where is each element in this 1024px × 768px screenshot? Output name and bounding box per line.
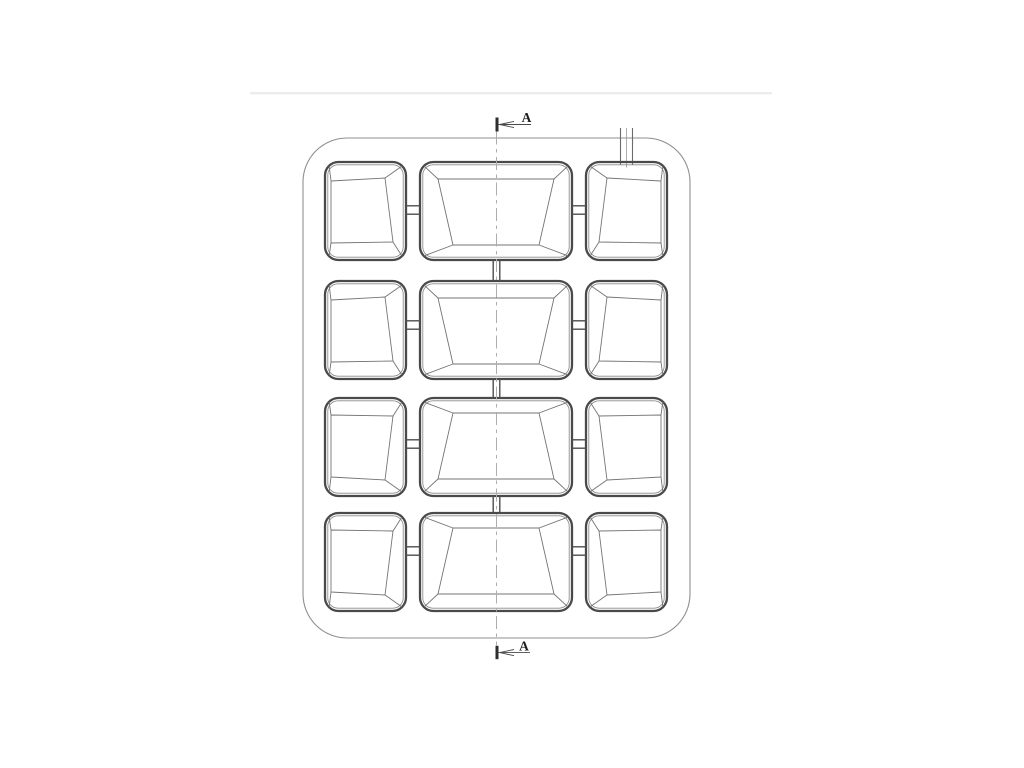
pocket-corner-chamfer bbox=[385, 285, 402, 297]
pocket-corner-chamfer bbox=[393, 242, 402, 256]
runner-row3-left bbox=[406, 440, 420, 448]
pocket-corner-chamfer bbox=[539, 517, 568, 528]
pocket-corner-chamfer bbox=[590, 480, 607, 492]
pocket-corner-chamfer bbox=[385, 166, 402, 178]
runner-row4-left bbox=[406, 547, 420, 555]
pocket-corner-chamfer bbox=[424, 402, 453, 413]
pocket-corner-chamfer bbox=[590, 361, 599, 375]
pocket-corner-chamfer bbox=[424, 517, 453, 528]
pocket-outer-edge bbox=[325, 281, 406, 379]
pocket-corner-chamfer bbox=[539, 364, 568, 375]
pocket-outer-edge bbox=[586, 398, 667, 496]
pocket-corner-chamfer bbox=[590, 517, 599, 531]
pocket-corner-chamfer bbox=[393, 402, 402, 416]
section-marker-top: A bbox=[497, 110, 532, 132]
pocket-corner-chamfer bbox=[590, 402, 599, 416]
pocket-corner-chamfer bbox=[385, 480, 402, 492]
pocket-corner-chamfer bbox=[539, 245, 568, 256]
pocket-corner-chamfer bbox=[554, 285, 568, 298]
pocket-corner-chamfer bbox=[424, 364, 453, 375]
pocket-corner-chamfer bbox=[393, 361, 402, 375]
pocket-corner-chamfer bbox=[424, 166, 438, 179]
pocket-outer-edge bbox=[325, 398, 406, 496]
pocket-row4-col3 bbox=[586, 513, 667, 611]
pocket-row1-col3 bbox=[586, 162, 667, 260]
pocket-row2-col3 bbox=[586, 281, 667, 379]
pocket-outer-edge bbox=[586, 513, 667, 611]
pocket-bottom-face bbox=[599, 415, 661, 480]
pocket-bottom-face bbox=[331, 415, 393, 480]
pocket-row3-col3 bbox=[586, 398, 667, 496]
runner-row4-right bbox=[572, 547, 586, 555]
pocket-corner-chamfer bbox=[424, 285, 438, 298]
section-label: A bbox=[519, 639, 529, 654]
runner-row2-right bbox=[572, 321, 586, 329]
pocket-row1-col1 bbox=[325, 162, 406, 260]
runner-row1-right bbox=[572, 206, 586, 214]
pocket-corner-chamfer bbox=[590, 242, 599, 256]
pocket-outer-edge bbox=[325, 162, 406, 260]
pocket-outer-edge bbox=[586, 281, 667, 379]
pocket-row2-col1 bbox=[325, 281, 406, 379]
pocket-row3-col1 bbox=[325, 398, 406, 496]
pocket-corner-chamfer bbox=[385, 595, 402, 607]
drawing-page: AA bbox=[0, 0, 1024, 768]
pocket-corner-chamfer bbox=[424, 479, 438, 492]
pocket-row4-col1 bbox=[325, 513, 406, 611]
pocket-corner-chamfer bbox=[393, 517, 402, 531]
pocket-outer-edge bbox=[586, 162, 667, 260]
section-label: A bbox=[522, 110, 532, 125]
pocket-bottom-face bbox=[331, 297, 393, 362]
pocket-bottom-face bbox=[331, 178, 393, 243]
pocket-corner-chamfer bbox=[424, 594, 438, 607]
pocket-corner-chamfer bbox=[554, 594, 568, 607]
pocket-corner-chamfer bbox=[554, 479, 568, 492]
runner-row2-left bbox=[406, 321, 420, 329]
pocket-bottom-face bbox=[599, 178, 661, 243]
pocket-bottom-face bbox=[599, 297, 661, 362]
separator-line bbox=[250, 92, 772, 94]
pocket-corner-chamfer bbox=[539, 402, 568, 413]
pocket-bottom-face bbox=[599, 530, 661, 595]
pocket-bottom-face bbox=[331, 530, 393, 595]
pocket-corner-chamfer bbox=[590, 285, 607, 297]
pocket-corner-chamfer bbox=[590, 595, 607, 607]
pocket-corner-chamfer bbox=[554, 166, 568, 179]
pocket-corner-chamfer bbox=[424, 245, 453, 256]
runner-row3-right bbox=[572, 440, 586, 448]
section-marker-bottom: A bbox=[497, 639, 530, 660]
pocket-corner-chamfer bbox=[590, 166, 607, 178]
technical-drawing: AA bbox=[0, 0, 1024, 768]
runner-row1-left bbox=[406, 206, 420, 214]
pocket-outer-edge bbox=[325, 513, 406, 611]
